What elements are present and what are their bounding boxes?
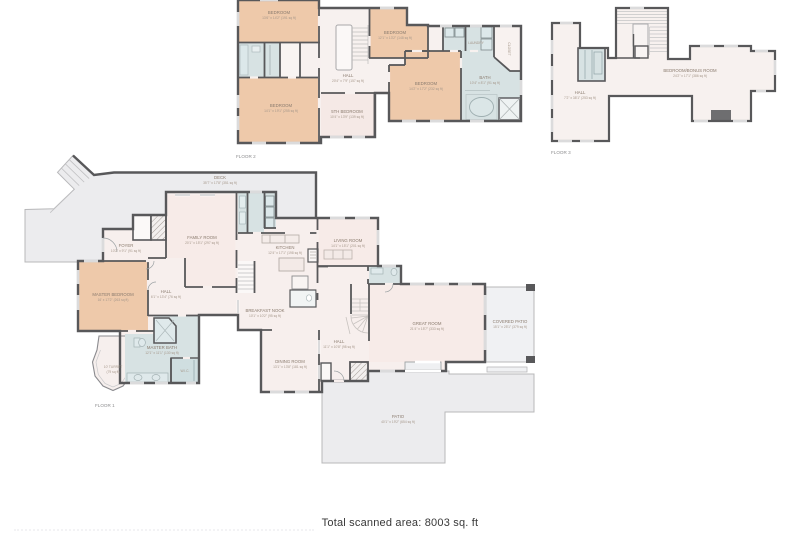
svg-text:GREAT ROOM: GREAT ROOM	[413, 321, 442, 326]
svg-text:5TH BEDROOM: 5TH BEDROOM	[331, 109, 363, 114]
svg-text:BEDROOM: BEDROOM	[415, 81, 438, 86]
svg-text:10' TURRET: 10' TURRET	[104, 365, 123, 369]
svg-text:7'2" x 38'1" (253 sq ft): 7'2" x 38'1" (253 sq ft)	[564, 96, 596, 100]
svg-text:BATH: BATH	[479, 75, 490, 80]
svg-text:MASTER BATH: MASTER BATH	[147, 345, 177, 350]
svg-text:21'4" x 15'7" (333 sq ft): 21'4" x 15'7" (333 sq ft)	[410, 327, 444, 331]
svg-text:12'1" x 11'1" (130 sq ft): 12'1" x 11'1" (130 sq ft)	[145, 351, 179, 355]
svg-text:BEDROOM: BEDROOM	[384, 30, 407, 35]
svg-text:FLOOR 1: FLOOR 1	[95, 403, 115, 408]
svg-text:11'1" x 10'8" (98 sq ft): 11'1" x 10'8" (98 sq ft)	[323, 345, 355, 349]
svg-text:HALL: HALL	[334, 339, 345, 344]
svg-text:12'1" x 13'2" (148 sq ft): 12'1" x 13'2" (148 sq ft)	[378, 36, 412, 40]
svg-text:10'4" x 13'9" (139 sq ft): 10'4" x 13'9" (139 sq ft)	[330, 115, 364, 119]
svg-text:CLOSET: CLOSET	[507, 42, 511, 55]
svg-text:LAUNDRY: LAUNDRY	[468, 41, 484, 45]
svg-text:14'1" x 15'1" (201 sq ft): 14'1" x 15'1" (201 sq ft)	[331, 244, 365, 248]
svg-text:BREAKFAST NOOK: BREAKFAST NOOK	[245, 308, 284, 313]
svg-text:PATIO: PATIO	[392, 414, 405, 419]
svg-text:13'6" x 14'2" (191 sq ft): 13'6" x 14'2" (191 sq ft)	[262, 16, 296, 20]
svg-text:COVERED PATIO: COVERED PATIO	[493, 319, 528, 324]
svg-text:BEDROOM: BEDROOM	[270, 103, 293, 108]
svg-text:10'1" x 10'2" (95 sq ft): 10'1" x 10'2" (95 sq ft)	[249, 314, 281, 318]
svg-text:12'4" x 17'1" (198 sq ft): 12'4" x 17'1" (198 sq ft)	[268, 251, 302, 255]
svg-text:FLOOR 3: FLOOR 3	[551, 150, 571, 155]
svg-text:14'1" x 19'1" (255 sq ft): 14'1" x 19'1" (255 sq ft)	[264, 109, 298, 113]
svg-text:FOYER: FOYER	[119, 243, 134, 248]
svg-text:HALL: HALL	[161, 289, 172, 294]
svg-text:MASTER BEDROOM: MASTER BEDROOM	[92, 292, 134, 297]
svg-text:14'2" x 17'2" (232 sq ft): 14'2" x 17'2" (232 sq ft)	[409, 87, 443, 91]
svg-text:LIVING ROOM: LIVING ROOM	[334, 238, 363, 243]
svg-text:FAMILY ROOM: FAMILY ROOM	[187, 235, 217, 240]
svg-text:15'1" x 25'1" (379 sq ft): 15'1" x 25'1" (379 sq ft)	[493, 325, 527, 329]
svg-text:HALL: HALL	[575, 90, 586, 95]
svg-text:DINING ROOM: DINING ROOM	[275, 359, 305, 364]
svg-text:HALL: HALL	[343, 73, 354, 78]
svg-text:KITCHEN: KITCHEN	[276, 245, 295, 250]
svg-text:10'4" x 8'1" (91 sq ft): 10'4" x 8'1" (91 sq ft)	[470, 81, 500, 85]
svg-text:BEDROOM/BONUS ROOM: BEDROOM/BONUS ROOM	[663, 68, 717, 73]
svg-text:24'2" x 17'1" (386 sq ft): 24'2" x 17'1" (386 sq ft)	[673, 74, 707, 78]
svg-text:20'1" x 15'1" (297 sq ft): 20'1" x 15'1" (297 sq ft)	[185, 241, 219, 245]
svg-text:10'2" x 9'1" (91 sq ft): 10'2" x 9'1" (91 sq ft)	[111, 249, 141, 253]
svg-text:35'7" x 17'8" (351 sq ft): 35'7" x 17'8" (351 sq ft)	[203, 181, 237, 185]
svg-text:20'4" x 7'9" (157 sq ft): 20'4" x 7'9" (157 sq ft)	[332, 79, 364, 83]
svg-text:40'1" x 19'2" (654 sq ft): 40'1" x 19'2" (654 sq ft)	[381, 420, 415, 424]
svg-text:6'1" x 13'4" (76 sq ft): 6'1" x 13'4" (76 sq ft)	[151, 295, 181, 299]
svg-text:16' x 17'2" (263 sq ft): 16' x 17'2" (263 sq ft)	[98, 298, 129, 302]
svg-text:FLOOR 2: FLOOR 2	[236, 154, 256, 159]
svg-text:BEDROOM: BEDROOM	[268, 10, 291, 15]
svg-text:DECK: DECK	[214, 175, 226, 180]
svg-text:(79 sq ft): (79 sq ft)	[106, 370, 119, 374]
svg-text:W.I.C.: W.I.C.	[181, 369, 190, 373]
svg-text:13'1" x 13'8" (181 sq ft): 13'1" x 13'8" (181 sq ft)	[273, 365, 307, 369]
